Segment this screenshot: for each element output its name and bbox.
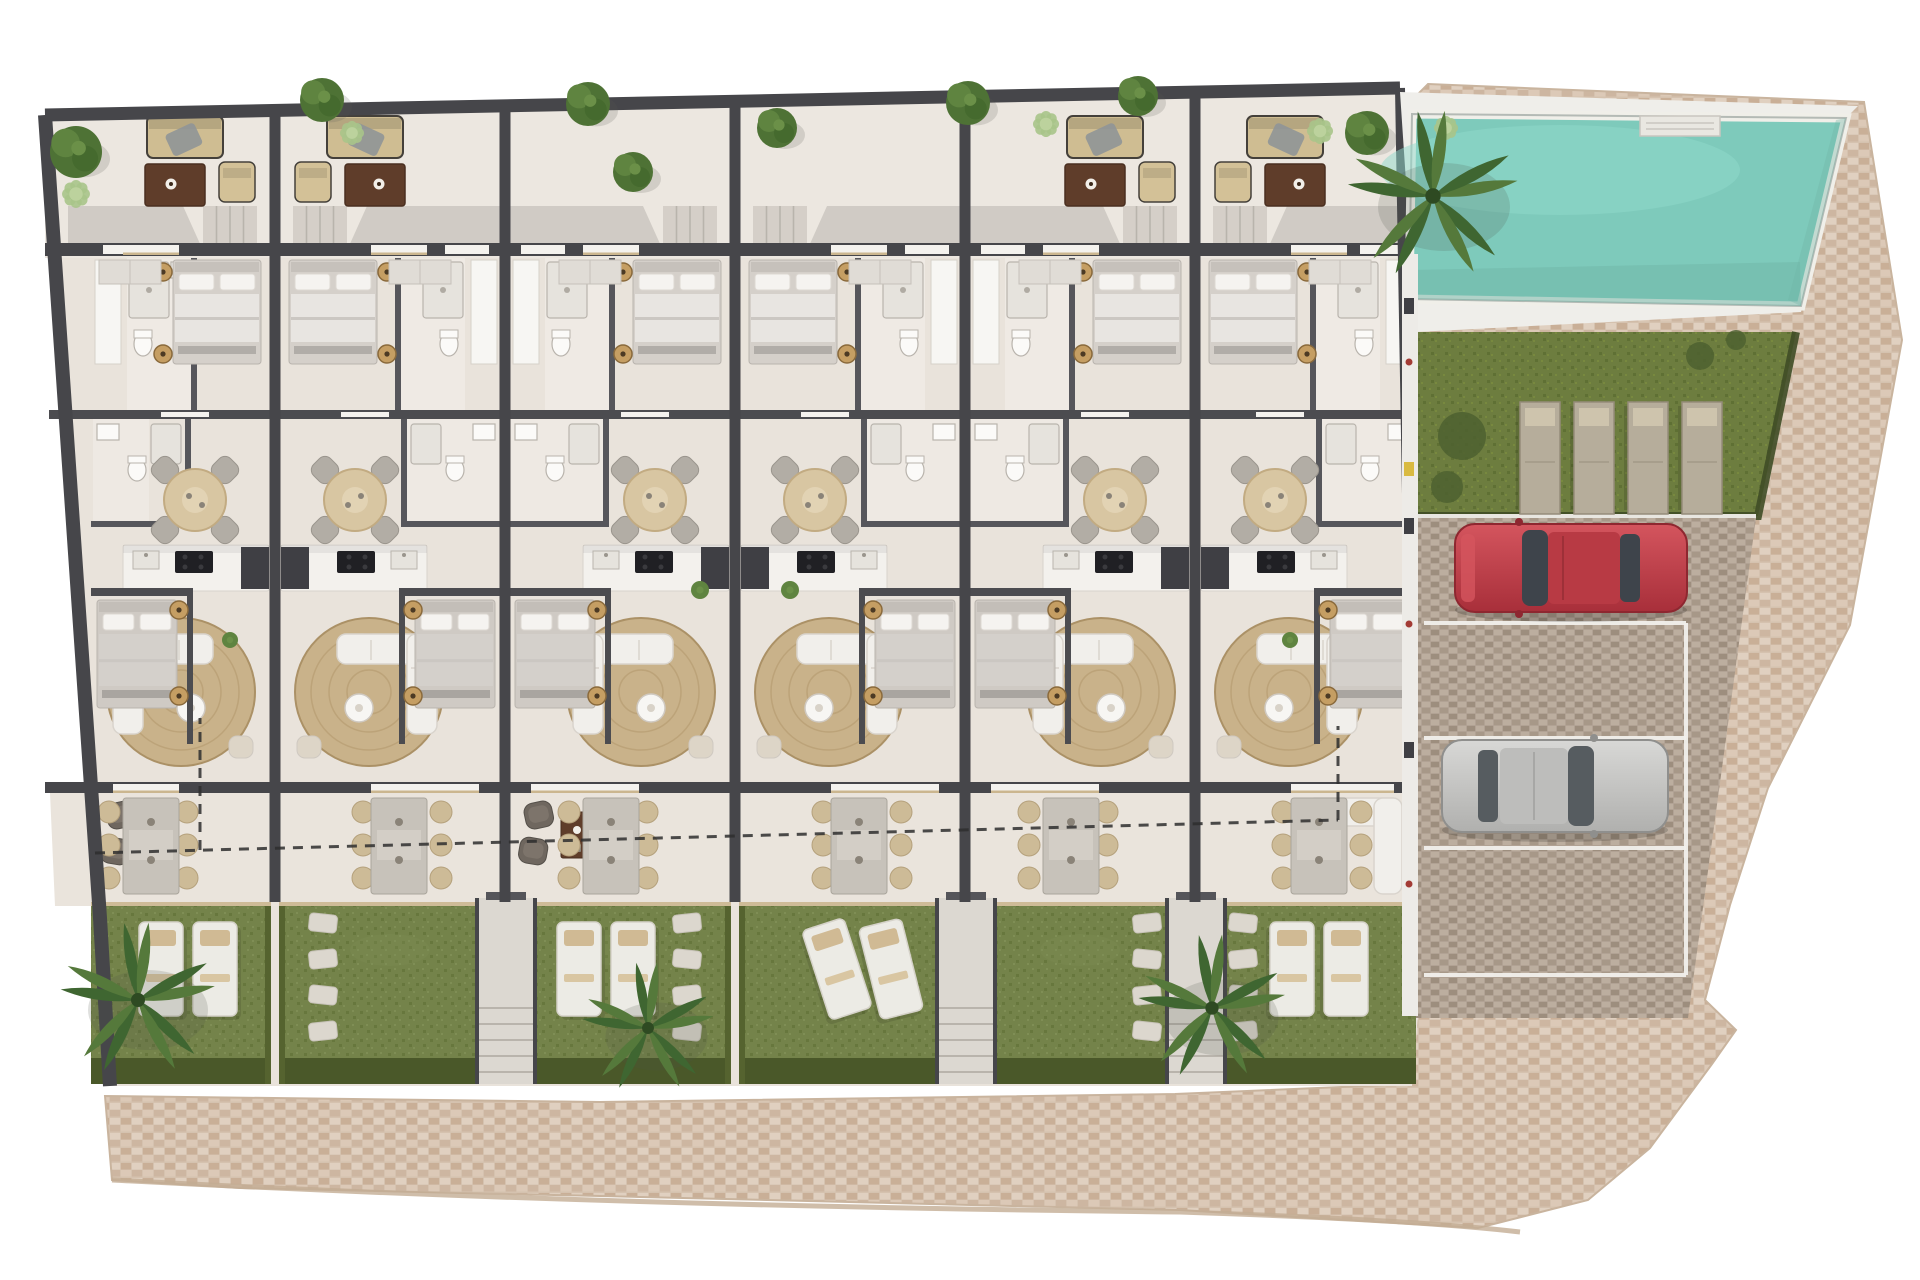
kitchen xyxy=(583,545,729,591)
site-plan-stage xyxy=(0,0,1920,1280)
sun-lounger xyxy=(1320,922,1368,1020)
stepping-stone xyxy=(1132,913,1162,934)
light-bush xyxy=(1033,111,1059,137)
lower-terrace xyxy=(98,798,198,894)
outdoor-dining-table xyxy=(558,798,658,894)
stepping-stone xyxy=(1132,1021,1162,1042)
private-garden xyxy=(739,902,961,1084)
stepping-stone xyxy=(1132,949,1162,970)
stepping-stone xyxy=(672,949,702,970)
lower-terrace xyxy=(812,798,912,894)
red-car xyxy=(1455,518,1687,622)
outdoor-dining-table xyxy=(98,798,198,894)
light-bush xyxy=(340,121,364,145)
outdoor-dining-table xyxy=(1272,798,1372,894)
kitchen xyxy=(1201,545,1347,591)
side-passage xyxy=(1402,254,1418,1016)
kitchen xyxy=(123,545,269,591)
lawn-lounger xyxy=(1570,402,1614,514)
kitchen xyxy=(741,545,887,591)
walkway-steps xyxy=(935,892,997,1084)
stepping-stone xyxy=(1228,913,1258,934)
stepping-stone xyxy=(308,913,338,934)
stepping-stone xyxy=(308,985,338,1006)
kitchen xyxy=(281,545,427,591)
kitchen xyxy=(1043,545,1189,591)
stepping-stone xyxy=(1228,949,1258,970)
stepping-stone xyxy=(672,913,702,934)
lawn-lounger xyxy=(1516,402,1560,514)
residential-site-plan-rendering xyxy=(0,0,1920,1280)
stepping-stone xyxy=(308,949,338,970)
lawn-lounger xyxy=(1678,402,1722,514)
private-garden xyxy=(279,902,501,1084)
lawn-lounger xyxy=(1624,402,1668,514)
light-bush xyxy=(62,180,90,208)
stepping-stone xyxy=(308,1021,338,1042)
outdoor-dining-table xyxy=(812,798,912,894)
silver-car xyxy=(1442,734,1668,842)
communal-lawn xyxy=(1416,330,1796,516)
outdoor-dining-table xyxy=(1018,798,1118,894)
private-garden xyxy=(969,902,1191,1084)
lower-terrace xyxy=(1018,798,1118,894)
light-bush xyxy=(1307,118,1333,144)
walkway-steps xyxy=(475,892,537,1084)
